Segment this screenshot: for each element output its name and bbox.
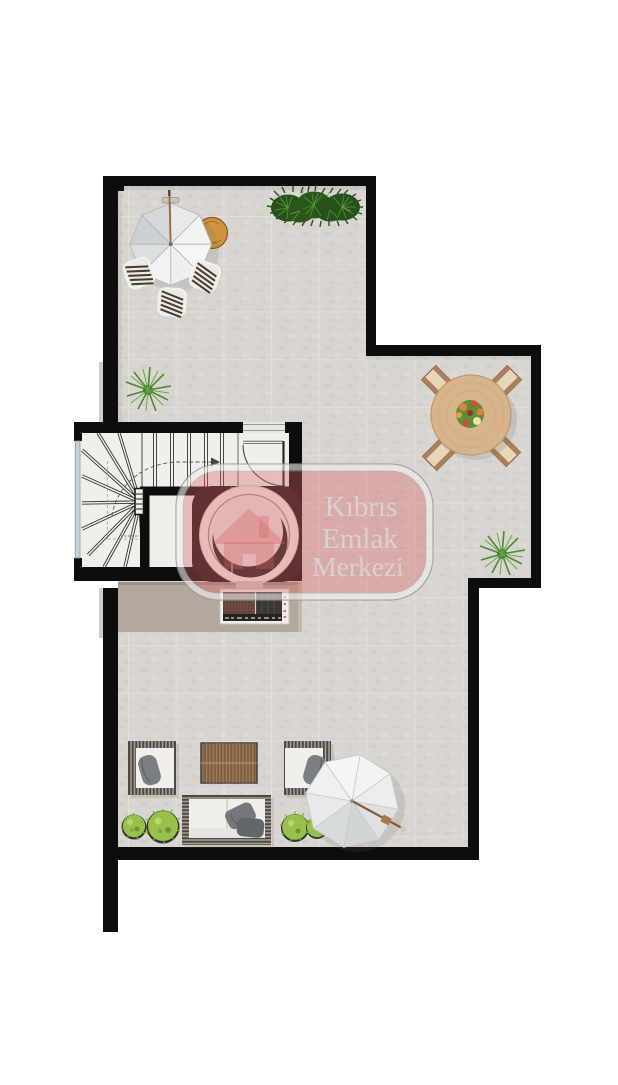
svg-text:Kıbrıs: Kıbrıs: [325, 491, 398, 523]
svg-text:Merkezi: Merkezi: [312, 551, 404, 582]
